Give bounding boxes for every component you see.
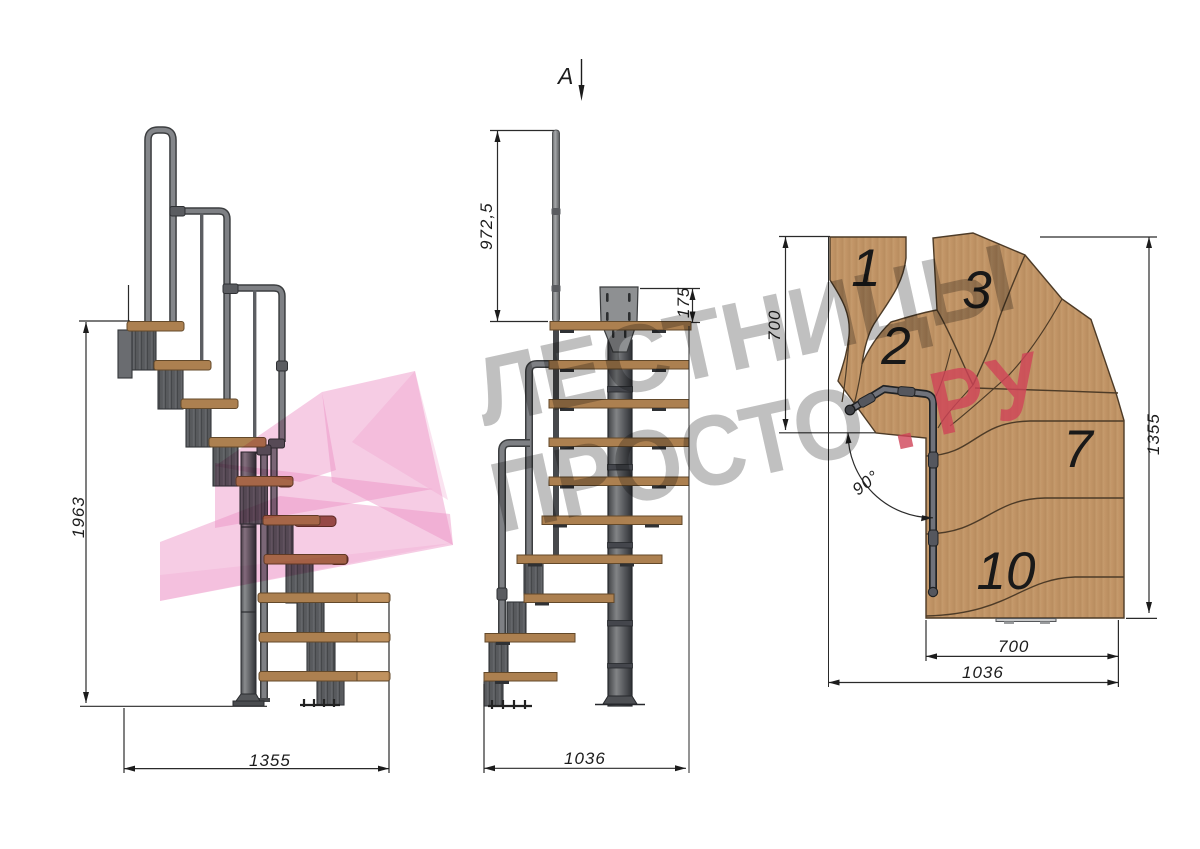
svg-text:1036: 1036 [564,749,606,768]
svg-text:1355: 1355 [1144,413,1163,455]
svg-text:700: 700 [998,637,1029,656]
svg-text:10: 10 [977,542,1036,601]
svg-text:1355: 1355 [249,751,291,770]
svg-text:7: 7 [1063,420,1095,479]
svg-text:1036: 1036 [962,663,1004,682]
svg-text:972,5: 972,5 [477,202,496,250]
svg-text:1963: 1963 [69,496,88,538]
svg-text:A: A [556,63,573,89]
